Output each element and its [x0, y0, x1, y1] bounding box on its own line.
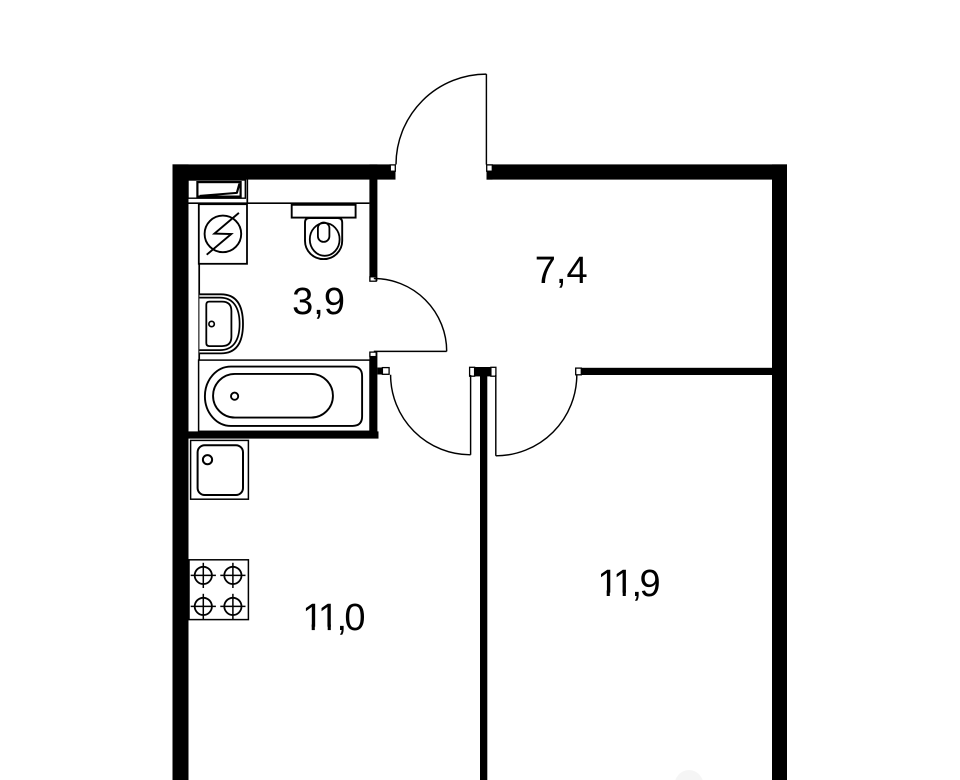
svg-text:11,0: 11,0 — [302, 597, 364, 639]
svg-text:7,4: 7,4 — [535, 250, 588, 292]
svg-text:3,9: 3,9 — [292, 281, 345, 323]
svg-text:11,9: 11,9 — [597, 563, 659, 605]
